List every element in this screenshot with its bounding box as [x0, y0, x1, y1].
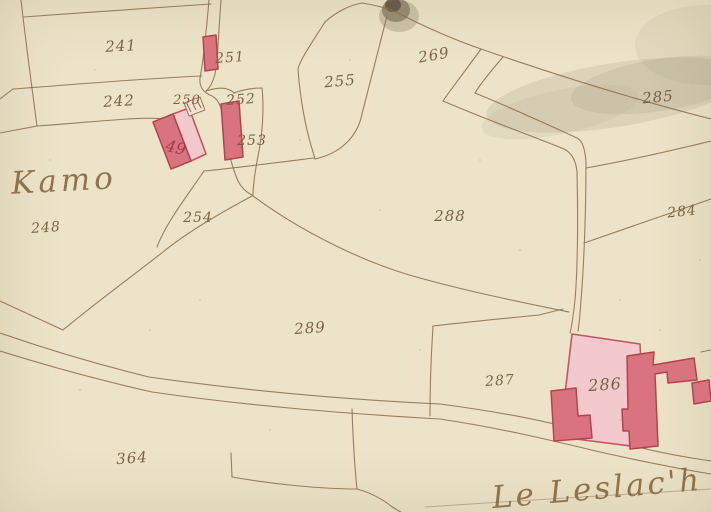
- boundary-line: [253, 196, 569, 312]
- cadastral-map: 241 242 248 250 251 252 253 254 255 269 …: [0, 0, 711, 512]
- boundary-line: [63, 196, 252, 330]
- parcel-label-286: 286: [587, 374, 623, 395]
- place-names: Kamo Le Leslac'h: [9, 160, 703, 512]
- parcel-label-242: 242: [102, 91, 136, 111]
- parcel-label-285: 285: [640, 87, 674, 108]
- boundary-line: [0, 126, 37, 133]
- boundary-line: [232, 477, 410, 512]
- parcel-label-248: 248: [30, 219, 62, 237]
- parcel-label-284: 284: [665, 202, 697, 221]
- parcel-label-364: 364: [116, 448, 149, 468]
- parcel-label-250: 250: [172, 93, 201, 108]
- parcel-label-252: 252: [225, 91, 257, 109]
- parcel-label-288: 288: [433, 207, 466, 225]
- map-canvas: 241 242 248 250 251 252 253 254 255 269 …: [0, 0, 711, 512]
- boundary-line: [0, 89, 13, 99]
- boundary-line: [157, 171, 204, 247]
- boundary-line: [231, 453, 232, 477]
- place-label-kamo: Kamo: [9, 160, 117, 202]
- building-286-detached: [692, 380, 711, 404]
- parcel-label-255: 255: [322, 71, 356, 92]
- boundary-line: [701, 350, 711, 352]
- boundary-line: [430, 326, 433, 416]
- parcel-label-289: 289: [293, 318, 327, 338]
- paper-stains: [379, 0, 711, 150]
- boundary-line: [433, 309, 563, 326]
- parcel-label-253: 253: [236, 133, 267, 149]
- boundary-line: [0, 301, 63, 330]
- parcel-label-254: 254: [182, 210, 213, 226]
- boundary-line: [204, 158, 314, 171]
- parcel-label-287: 287: [484, 372, 516, 390]
- building-286-right: [622, 352, 697, 449]
- parcel-label-251: 251: [214, 49, 246, 67]
- parcel-label-269: 269: [416, 43, 451, 66]
- boundary-line: [352, 409, 357, 489]
- boundary-line: [13, 76, 202, 89]
- boundary-line: [24, 4, 211, 17]
- place-label-le-leslach: Le Leslac'h: [489, 462, 703, 512]
- parcel-label-241: 241: [104, 36, 138, 56]
- building-253: [221, 101, 243, 160]
- boundary-line: [586, 141, 711, 168]
- boundary-line: [21, 0, 37, 126]
- boundary-line: [298, 22, 325, 159]
- road-edge: [475, 57, 503, 93]
